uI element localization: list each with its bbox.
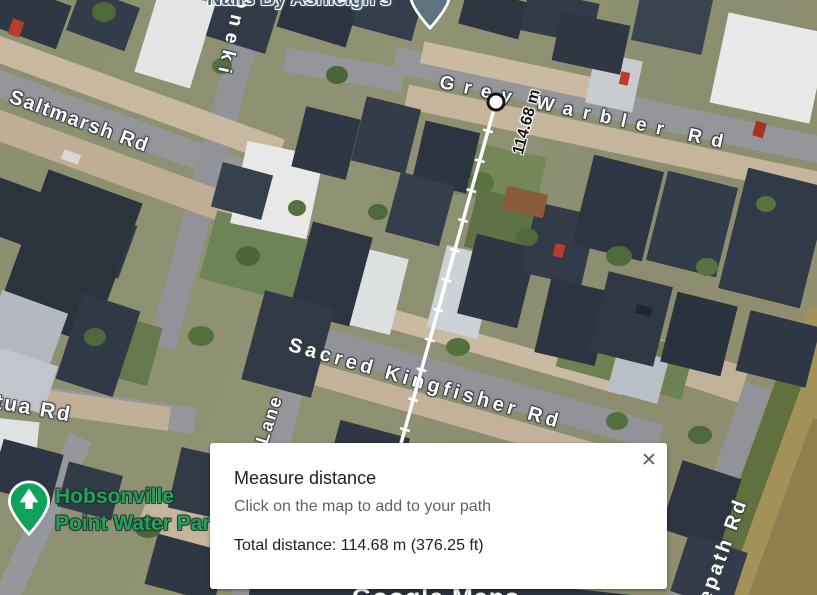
map-patch — [134, 0, 215, 89]
dialog-title: Measure distance — [234, 468, 643, 489]
map-patch — [385, 172, 455, 246]
measure-distance-dialog: ✕ Measure distance Click on the map to a… — [210, 443, 667, 589]
map-patch — [206, 0, 280, 54]
map-patch — [710, 12, 817, 123]
map-patch — [92, 2, 116, 22]
map-patch — [134, 516, 162, 538]
map-patch — [446, 338, 470, 356]
map-patch — [84, 328, 106, 346]
map-canvas[interactable]: Saltmarsh RdGrey Warbler RdSacred Kingfi… — [0, 0, 817, 595]
map-patch — [188, 326, 214, 346]
map-patch — [288, 200, 306, 216]
close-icon[interactable]: ✕ — [633, 445, 665, 477]
business-pin-icon[interactable] — [404, 0, 456, 30]
map-patch — [458, 0, 528, 39]
map-patch — [351, 96, 421, 174]
dialog-total-distance: Total distance: 114.68 m (376.25 ft) — [234, 537, 643, 555]
map-patch — [606, 412, 628, 430]
map-patch — [696, 258, 718, 276]
map-patch — [688, 426, 712, 444]
map-patch — [212, 58, 232, 74]
map-patch — [468, 172, 494, 194]
map-patch — [516, 228, 538, 246]
map-patch — [756, 196, 776, 212]
dialog-subtitle: Click on the map to add to your path — [234, 498, 643, 516]
map-patch — [606, 246, 632, 266]
map-patch — [277, 0, 360, 47]
map-patch — [552, 11, 631, 74]
map-patch — [57, 462, 123, 521]
map-patch — [631, 0, 713, 55]
park-pin-icon[interactable] — [5, 480, 53, 536]
map-patch — [326, 66, 348, 84]
map-patch — [291, 106, 360, 180]
map-patch — [368, 204, 388, 220]
map-patch — [236, 246, 260, 266]
